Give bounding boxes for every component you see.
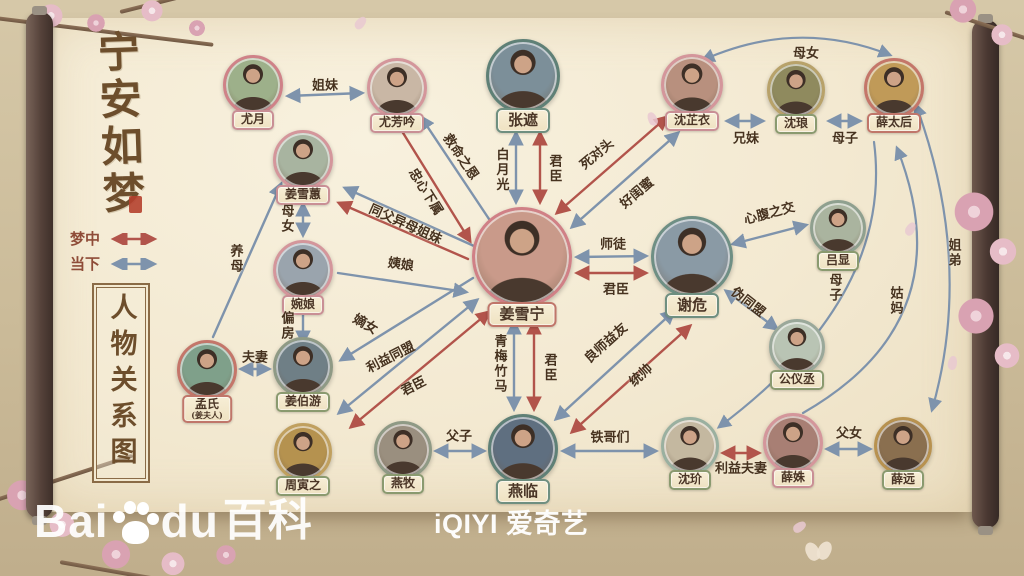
baidu-paw-icon — [112, 500, 158, 548]
baidu-baike-logo: Bai du 百科 — [34, 484, 313, 548]
petal — [791, 519, 808, 534]
scroll-rod-right — [972, 20, 999, 528]
drama-title: 宁安如梦 — [85, 29, 153, 226]
relationship-poster: 宁安如梦 梦中当下 人物关系图 尤月尤芳吟张遮沈芷衣沈琅薛太后姜雪蕙婉娘姜雪宁谢… — [0, 0, 1024, 576]
title-seal-icon — [129, 196, 142, 213]
blossom — [990, 24, 1014, 48]
blossom — [993, 343, 1021, 371]
scroll-rod-left — [26, 12, 53, 518]
baidu-text: Bai — [34, 494, 109, 548]
blossom — [160, 552, 186, 576]
legend: 梦中当下 — [70, 228, 162, 274]
baike-text: 百科 — [223, 484, 313, 548]
blossom-branch — [120, 0, 218, 14]
legend-item: 梦中 — [70, 228, 162, 249]
legend-item: 当下 — [70, 253, 162, 274]
baidu-text: du — [161, 494, 219, 548]
iqiyi-logo: iQIYI 爱奇艺 — [434, 502, 589, 541]
blossom — [215, 545, 237, 567]
scroll-paper — [44, 18, 974, 512]
blossom — [988, 238, 1018, 268]
blossom — [140, 0, 164, 24]
blossom — [952, 192, 996, 236]
diagram-title: 人物关系图 — [92, 283, 150, 483]
blossom — [188, 20, 206, 38]
blossom — [956, 298, 996, 338]
